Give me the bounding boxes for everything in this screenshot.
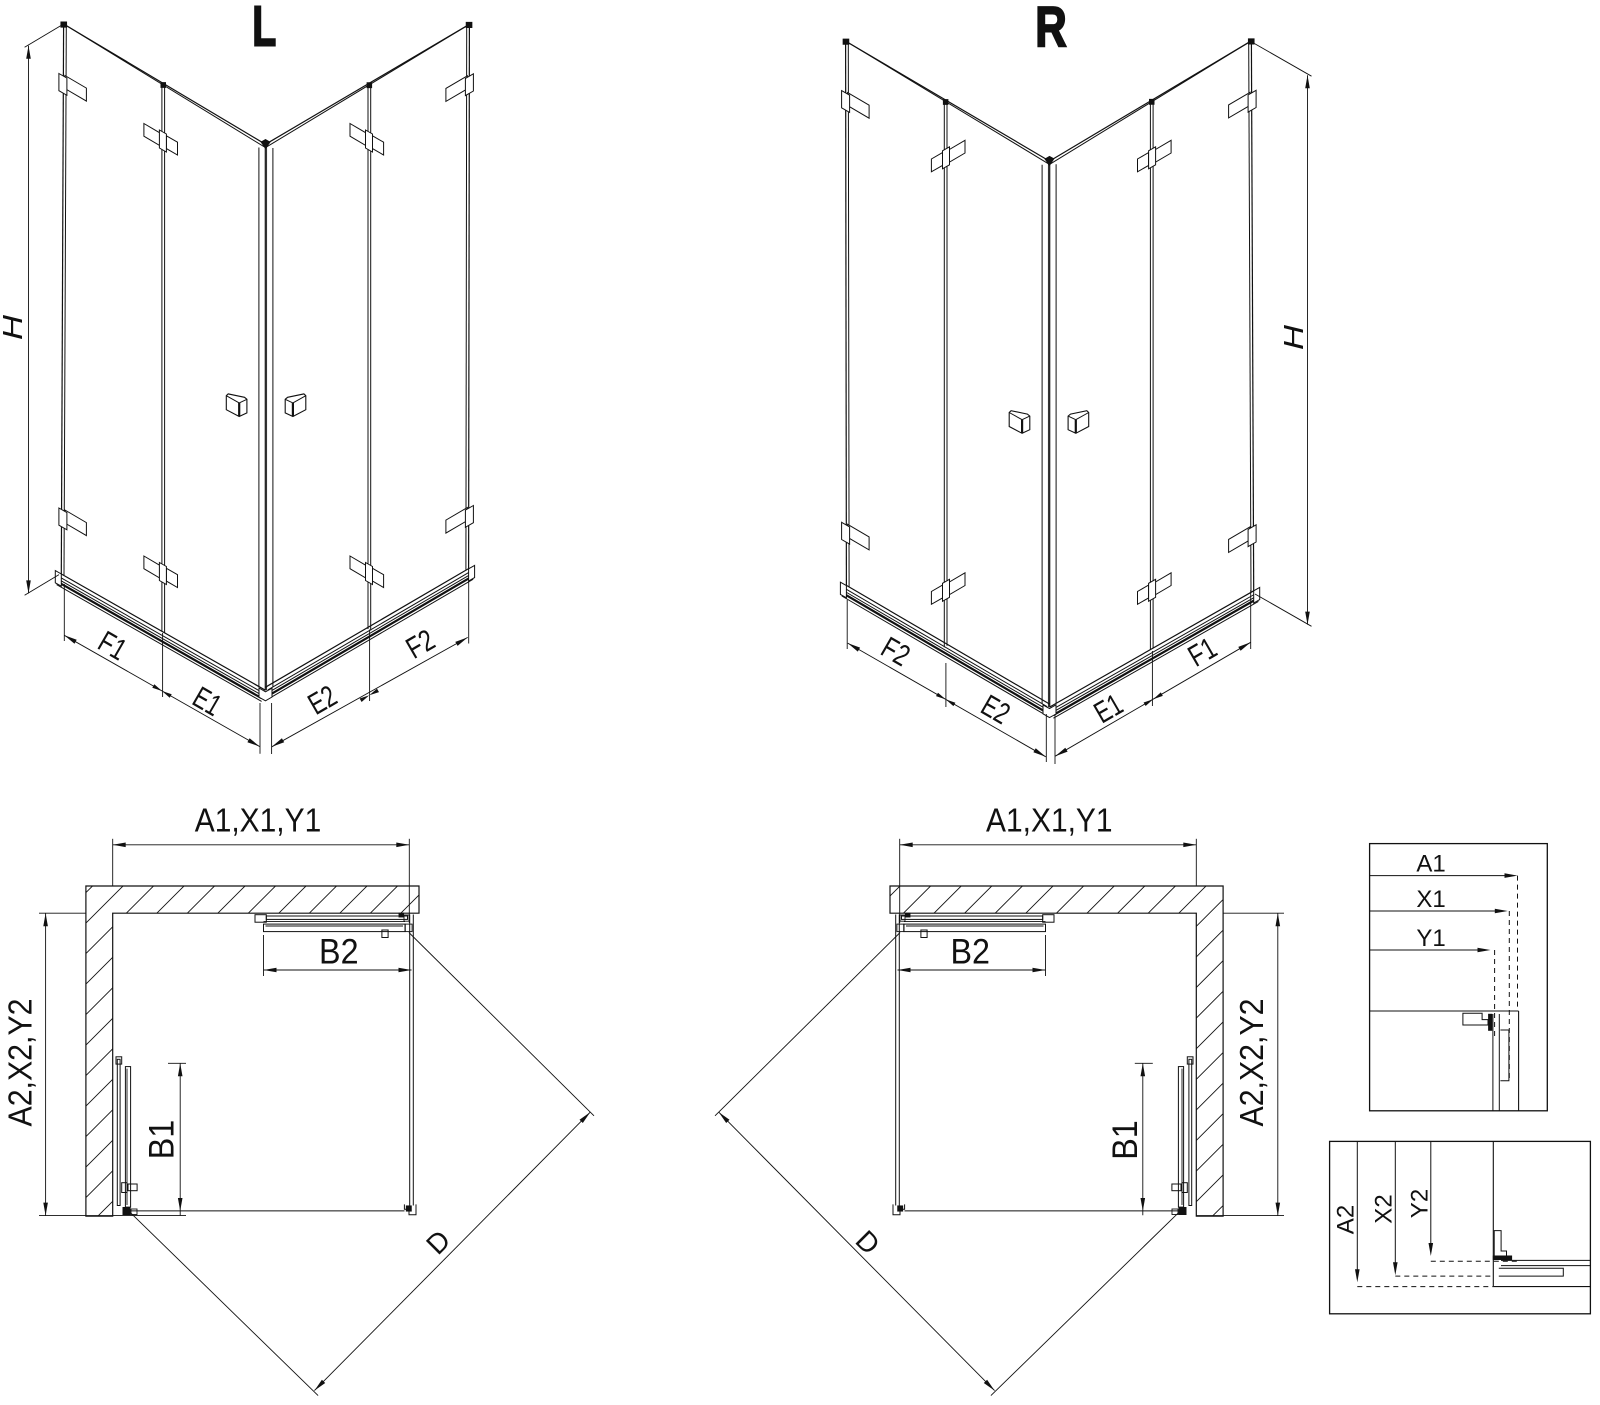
svg-text:A1,X1,Y1: A1,X1,Y1	[195, 802, 322, 839]
svg-text:L: L	[252, 0, 276, 59]
svg-text:B1: B1	[1106, 1120, 1145, 1160]
svg-text:A2,X2,Y2: A2,X2,Y2	[1233, 999, 1270, 1127]
svg-text:B1: B1	[143, 1120, 182, 1160]
svg-text:A2,X2,Y2: A2,X2,Y2	[2, 999, 39, 1127]
svg-text:A1: A1	[1416, 851, 1445, 878]
svg-text:Y2: Y2	[1407, 1189, 1434, 1218]
svg-text:H: H	[1278, 324, 1309, 350]
svg-text:B2: B2	[950, 933, 990, 972]
svg-text:B2: B2	[319, 933, 359, 972]
svg-text:Y1: Y1	[1416, 925, 1445, 952]
svg-text:H: H	[0, 314, 28, 340]
svg-text:A1,X1,Y1: A1,X1,Y1	[986, 802, 1113, 839]
svg-text:X2: X2	[1371, 1194, 1398, 1223]
svg-text:A2: A2	[1333, 1205, 1360, 1234]
svg-text:R: R	[1035, 0, 1067, 60]
svg-text:X1: X1	[1416, 886, 1445, 913]
